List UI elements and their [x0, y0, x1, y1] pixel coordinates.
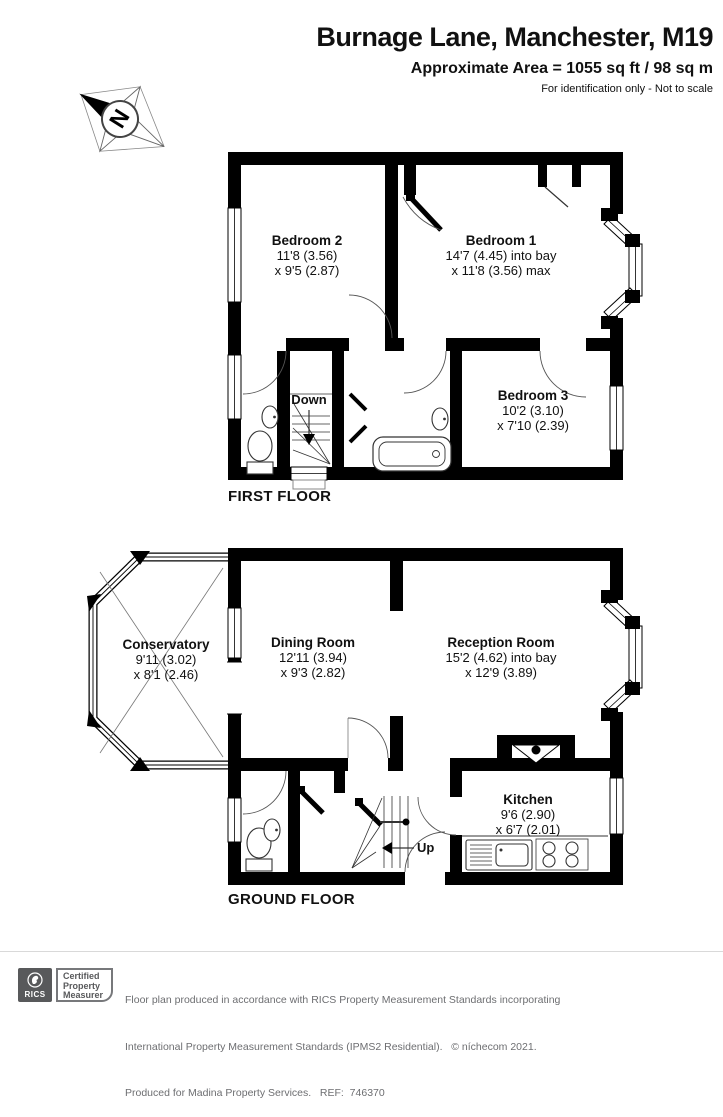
badge-line: Measurer — [63, 991, 111, 1001]
sink-icon — [432, 408, 448, 430]
window — [610, 778, 623, 834]
cupboard-doors — [350, 394, 366, 442]
room-dim: 9'11 (3.02) — [122, 652, 209, 667]
room-dim: 14'7 (4.45) into bay — [446, 248, 557, 263]
room-dim: x 11'8 (3.56) max — [446, 263, 557, 278]
room-dim: 10'2 (3.10) — [497, 403, 569, 418]
room-name: Reception Room — [446, 635, 557, 650]
first-floor-caption: FIRST FLOOR — [228, 488, 331, 505]
rics-logo: RICS — [18, 968, 52, 1002]
room-dim: x 12'9 (3.89) — [446, 665, 557, 680]
room-label-dining-room: Dining Room 12'11 (3.94) x 9'3 (2.82) — [271, 635, 355, 680]
room-label-reception-room: Reception Room 15'2 (4.62) into bay x 12… — [446, 635, 557, 680]
room-label-kitchen: Kitchen 9'6 (2.90) x 6'7 (2.01) — [496, 792, 561, 837]
window — [610, 386, 623, 450]
room-label-bedroom-1: Bedroom 1 14'7 (4.45) into bay x 11'8 (3… — [446, 233, 557, 278]
room-dim: 12'11 (3.94) — [271, 650, 355, 665]
room-dim: x 7'10 (2.39) — [497, 418, 569, 433]
footer-disclaimer: Floor plan produced in accordance with R… — [125, 962, 560, 1117]
rics-logo-text: RICS — [24, 990, 45, 999]
room-label-bedroom-2: Bedroom 2 11'8 (3.56) x 9'5 (2.87) — [272, 233, 343, 278]
toilet-icon — [247, 431, 273, 474]
room-label-bedroom-3: Bedroom 3 10'2 (3.10) x 7'10 (2.39) — [497, 388, 569, 433]
first-floor-plan — [228, 152, 642, 489]
room-dim: x 9'3 (2.82) — [271, 665, 355, 680]
footer-line-3: Produced for Madina Property Services. R… — [125, 1086, 560, 1102]
floorplan-canvas: N — [0, 0, 723, 1024]
ground-floor-caption: GROUND FLOOR — [228, 891, 355, 908]
room-name: Conservatory — [122, 637, 209, 652]
stairs-up-label: Up — [417, 840, 434, 855]
room-dim: 9'6 (2.90) — [496, 807, 561, 822]
compass-north-icon: N — [59, 61, 184, 178]
sink-icon — [262, 406, 278, 428]
floorplan-page: { "header": { "title": "Burnage Lane, Ma… — [0, 0, 723, 1024]
room-name: Bedroom 3 — [497, 388, 569, 403]
window — [291, 467, 327, 489]
room-dim: 11'8 (3.56) — [272, 248, 343, 263]
bay-window — [601, 208, 642, 329]
kitchen-counter — [462, 836, 608, 870]
footer-divider — [0, 951, 723, 952]
hob-icon — [536, 839, 588, 870]
room-name: Bedroom 1 — [446, 233, 557, 248]
room-dim: x 8'1 (2.46) — [122, 667, 209, 682]
footer-line-1: Floor plan produced in accordance with R… — [125, 993, 560, 1009]
certified-property-measurer-badge: Certified Property Measurer — [56, 968, 113, 1002]
rics-lion-icon — [26, 971, 44, 989]
kitchen-sink-icon — [466, 840, 532, 870]
room-dim: x 6'7 (2.01) — [496, 822, 561, 837]
room-name: Kitchen — [496, 792, 561, 807]
room-name: Dining Room — [271, 635, 355, 650]
footer-line-2: International Property Measurement Stand… — [125, 1040, 560, 1056]
stairs-down-label: Down — [291, 392, 326, 407]
bay-window — [601, 590, 642, 721]
room-dim: x 9'5 (2.87) — [272, 263, 343, 278]
room-dim: 15'2 (4.62) into bay — [446, 650, 557, 665]
room-name: Bedroom 2 — [272, 233, 343, 248]
room-label-conservatory: Conservatory 9'11 (3.02) x 8'1 (2.46) — [122, 637, 209, 682]
fireplace-icon — [497, 735, 575, 763]
bathtub-icon — [373, 437, 451, 471]
sink-icon — [264, 819, 280, 841]
